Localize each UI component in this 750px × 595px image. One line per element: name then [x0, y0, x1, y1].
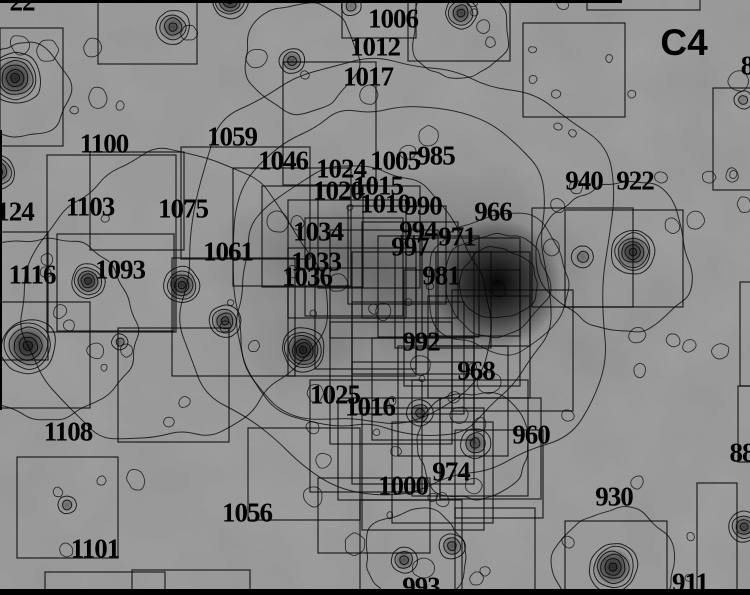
- field-label: C4: [660, 22, 707, 64]
- contour-map-figure: 1006101210171100105910461024100598510201…: [0, 0, 750, 595]
- contour-map-canvas: [0, 0, 750, 595]
